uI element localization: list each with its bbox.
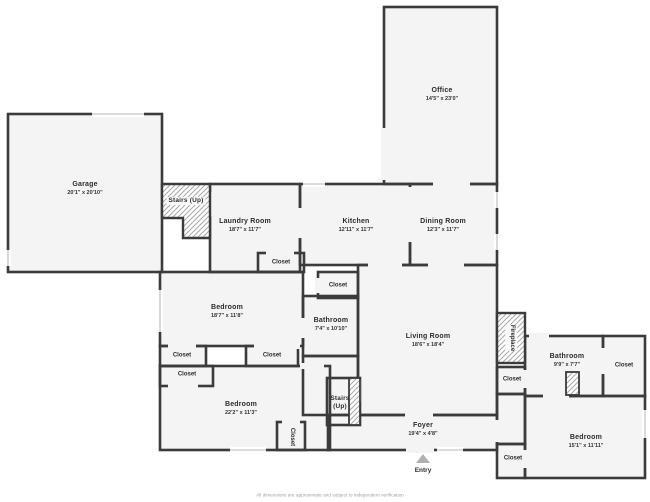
door-kitchen-living <box>368 262 402 268</box>
room-name: Bedroom <box>569 434 604 443</box>
room-name: Bathroom <box>550 353 585 362</box>
door-laundry-kitchen <box>297 208 303 238</box>
opening-kitchen-dining <box>407 187 413 242</box>
label-fireplace: Fireplace <box>505 325 517 351</box>
label-closet-d: Closet <box>263 352 281 360</box>
entry-label: Entry <box>415 467 432 475</box>
room-dims: 22'2" x 11'3" <box>225 410 257 417</box>
label-stairs-upper: Stairs (Up) <box>166 197 205 205</box>
room-label-kitchen: Kitchen 12'11" x 11'7" <box>339 218 374 234</box>
label-closet-f: Closet <box>287 428 295 446</box>
closet-label: Closet <box>615 362 633 370</box>
closet-label: Closet <box>287 428 295 446</box>
room-label-dining: Dining Room 12'3" x 11'7" <box>420 218 466 234</box>
room-label-bedroom2: Bedroom 22'2" x 11'3" <box>225 401 257 417</box>
door-bedroom3 <box>543 393 569 399</box>
room-name: Bedroom <box>211 304 243 313</box>
room-dims: 12'3" x 11'7" <box>420 227 466 234</box>
door-closet-kitchen <box>266 250 294 256</box>
door-closet-f <box>282 419 300 425</box>
room-name: Dining Room <box>420 218 466 227</box>
disclaimer-text: All dimensions are approximate and subje… <box>256 493 404 498</box>
label-closet-g: Closet <box>503 376 521 384</box>
stairs-label: Stairs (Up) <box>327 395 353 411</box>
door-closet-hall <box>315 278 321 293</box>
door-office-bottom <box>433 180 470 187</box>
room-name: Living Room <box>406 333 451 342</box>
room-label-garage: Garage 20'1" x 20'10" <box>67 181 102 197</box>
room-name: Office <box>426 87 458 96</box>
room-name: Bedroom <box>225 401 257 410</box>
room-dims: 7'4" x 10'10" <box>314 326 349 333</box>
closet-label: Closet <box>272 259 290 267</box>
closet-label: Closet <box>178 371 196 379</box>
stairs-label: Stairs (Up) <box>166 197 205 205</box>
door-closet-d <box>254 343 286 349</box>
room-dims: 20'1" x 20'10" <box>67 190 102 197</box>
door-bedroom2 <box>300 363 324 369</box>
label-entry: Entry <box>415 467 432 475</box>
closet-label: Closet <box>504 455 522 463</box>
fireplace-label: Fireplace <box>505 325 517 351</box>
room-name: Laundry Room <box>219 218 271 227</box>
closet-label: Closet <box>329 282 347 290</box>
room-label-laundry: Laundry Room 18'7" x 11'7" <box>219 218 271 234</box>
room-label-foyer: Foyer 19'4" x 4'8" <box>408 422 437 438</box>
label-stairs-lower: Stairs (Up) <box>327 395 353 411</box>
floorplan-drawing <box>0 0 650 502</box>
stairs-upper-hatch <box>162 184 210 238</box>
label-closet-kitchen: Closet <box>272 259 290 267</box>
label-closet-e: Closet <box>178 371 196 379</box>
hall-right-floor <box>497 394 525 444</box>
bathroom2-fixture-hatch <box>566 372 579 395</box>
door-closet-i <box>522 450 528 468</box>
label-closet-hall: Closet <box>329 282 347 290</box>
closet-label: Closet <box>263 352 281 360</box>
door-living-foyer <box>405 412 433 418</box>
room-name: Bathroom <box>314 317 349 326</box>
label-closet-h: Closet <box>615 362 633 370</box>
door-closet-c <box>168 343 196 349</box>
door-bathroom1 <box>300 318 306 338</box>
door-dining-living <box>428 262 464 268</box>
floorplan-page: Garage 20'1" x 20'10" Stairs (Up) Laundr… <box>0 0 650 502</box>
room-label-office: Office 14'5" x 23'0" <box>426 87 458 103</box>
closet-label: Closet <box>503 376 521 384</box>
door-foyer-hall-right <box>494 420 500 442</box>
door-entry <box>406 447 434 453</box>
entry-arrow-icon <box>416 454 430 463</box>
room-dims: 18'7" x 11'7" <box>219 227 271 234</box>
room-name: Kitchen <box>339 218 374 227</box>
door-bathroom2 <box>529 333 549 339</box>
closet-label: Closet <box>173 352 191 360</box>
door-office-left <box>381 128 387 180</box>
label-closet-i: Closet <box>504 455 522 463</box>
room-name: Garage <box>67 181 102 190</box>
room-label-bedroom3: Bedroom 15'1" x 11'11" <box>569 434 604 450</box>
door-closet-h <box>600 348 606 374</box>
room-dims: 14'5" x 23'0" <box>426 96 458 103</box>
door-closet-e <box>168 383 198 389</box>
room-label-bathroom1: Bathroom 7'4" x 10'10" <box>314 317 349 333</box>
room-label-bathroom2: Bathroom 9'9" x 7'7" <box>550 353 585 369</box>
room-dims: 18'6" x 18'4" <box>406 342 451 349</box>
room-dims: 12'11" x 11'7" <box>339 227 374 234</box>
room-dims: 19'4" x 4'8" <box>408 431 437 438</box>
room-dims: 9'9" x 7'7" <box>550 362 585 369</box>
room-label-bedroom1: Bedroom 18'7" x 11'8" <box>211 304 243 320</box>
room-name: Foyer <box>408 422 437 431</box>
room-dims: 18'7" x 11'8" <box>211 313 243 320</box>
door-closet-g <box>522 370 528 388</box>
room-label-living: Living Room 18'6" x 18'4" <box>406 333 451 349</box>
label-closet-c: Closet <box>173 352 191 360</box>
room-dims: 15'1" x 11'11" <box>569 443 604 450</box>
